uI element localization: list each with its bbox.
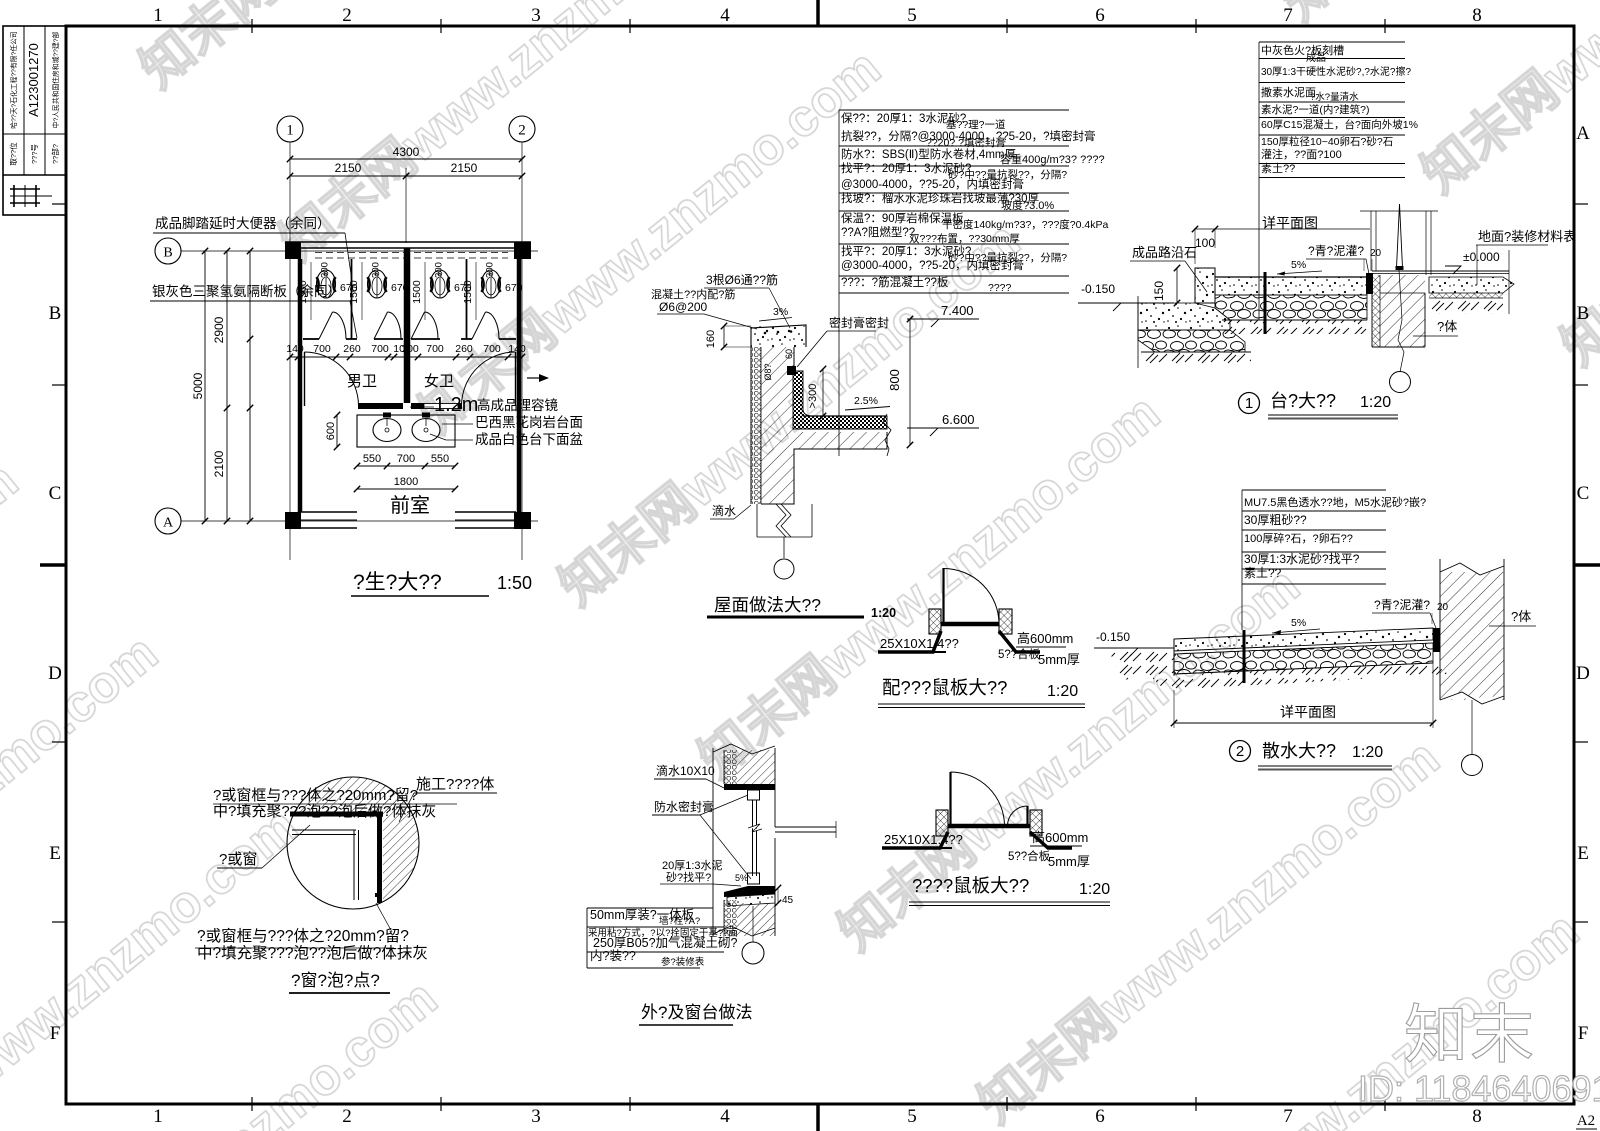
svg-text:140: 140 <box>286 343 304 355</box>
svg-text:5mm厚: 5mm厚 <box>1038 652 1080 667</box>
svg-text:银灰色三聚氢氨隔断板（余同）: 银灰色三聚氢氨隔断板（余同） <box>152 283 341 299</box>
svg-text:6.600: 6.600 <box>942 412 975 427</box>
svg-text:??A?阻燃型??: ??A?阻燃型?? <box>841 225 915 239</box>
svg-text:5??合板: 5??合板 <box>998 647 1041 661</box>
svg-text:-0.150: -0.150 <box>1096 630 1130 644</box>
svg-text:1500: 1500 <box>348 280 360 304</box>
svg-text:取??位: 取??位 <box>8 142 18 166</box>
svg-text:ID: 1184640691: ID: 1184640691 <box>1358 1068 1600 1109</box>
svg-text:2: 2 <box>1236 743 1244 760</box>
svg-text:30厚1:3水泥砂?找平?: 30厚1:3水泥砂?找平? <box>1244 552 1360 566</box>
svg-text:?或窗框与???体之?20mm?留?: ?或窗框与???体之?20mm?留? <box>213 786 418 804</box>
svg-text:1: 1 <box>153 5 163 26</box>
svg-text:300: 300 <box>485 262 496 278</box>
svg-text:墙?栓?A?: 墙?栓?A? <box>659 915 700 927</box>
svg-text:混凝土??内配?筋: 混凝土??内配?筋 <box>651 287 735 301</box>
svg-text:550: 550 <box>431 453 449 465</box>
svg-text:散水大??: 散水大?? <box>1262 741 1336 761</box>
svg-text:4: 4 <box>720 5 730 26</box>
svg-text:??20? ?填密封膏: ??20? ?填密封膏 <box>926 136 1006 149</box>
svg-text:基??理?一道: 基??理?一道 <box>946 118 1006 131</box>
svg-text:?体: ?体 <box>1511 609 1531 624</box>
svg-text:防水?：SBS(Ⅱ)型防水卷材,4mm厚: 防水?：SBS(Ⅱ)型防水卷材,4mm厚 <box>841 147 1016 161</box>
svg-text:???：?筋混凝土??板: ???：?筋混凝土??板 <box>841 275 949 289</box>
svg-text:2150: 2150 <box>451 161 478 175</box>
svg-text:中?填充聚???泡??泡后做?体抹灰: 中?填充聚???泡??泡后做?体抹灰 <box>197 944 428 962</box>
svg-text:20厚1:3水泥: 20厚1:3水泥 <box>662 859 723 872</box>
svg-text:女卫: 女卫 <box>424 372 454 390</box>
svg-text:±0.000: ±0.000 <box>1463 250 1500 264</box>
svg-text:1800: 1800 <box>394 476 418 488</box>
svg-text:?水?量清水: ?水?量清水 <box>1310 91 1359 103</box>
svg-text:5%: 5% <box>1291 617 1306 629</box>
svg-text:150: 150 <box>1152 281 1166 301</box>
svg-text:?青?泥灌?: ?青?泥灌? <box>1374 598 1430 612</box>
svg-text:砂?找平?: 砂?找平? <box>666 870 711 884</box>
svg-text:700: 700 <box>397 453 415 465</box>
svg-text:3: 3 <box>531 5 541 26</box>
svg-text:670: 670 <box>391 282 409 294</box>
svg-text:?生?大??: ?生?大?? <box>353 571 442 594</box>
svg-text:1: 1 <box>1245 395 1253 412</box>
svg-text:1.2m: 1.2m <box>434 394 478 416</box>
svg-text:5%: 5% <box>735 873 748 883</box>
svg-text:1:20: 1:20 <box>1360 394 1391 411</box>
svg-text:?体: ?体 <box>1437 319 1457 334</box>
svg-text:D: D <box>48 663 62 684</box>
svg-text:45: 45 <box>782 895 794 906</box>
svg-text:5mm厚: 5mm厚 <box>1048 854 1090 869</box>
svg-text:4: 4 <box>720 1106 730 1127</box>
svg-text:700: 700 <box>483 343 501 355</box>
svg-text:2100: 2100 <box>212 450 226 477</box>
svg-text:A: A <box>163 516 174 531</box>
svg-text:-0.150: -0.150 <box>1081 282 1115 296</box>
svg-text:2.5%: 2.5% <box>854 395 878 407</box>
svg-text:配???鼠板大??: 配???鼠板大?? <box>882 677 1007 698</box>
svg-text:>300: >300 <box>807 384 819 409</box>
svg-text:撒素水泥面: 撒素水泥面 <box>1261 85 1316 99</box>
svg-text:1: 1 <box>153 1106 163 1127</box>
svg-text:700: 700 <box>426 343 444 355</box>
svg-text:1: 1 <box>286 123 294 139</box>
svg-text:2: 2 <box>518 123 526 139</box>
svg-text:A123001270: A123001270 <box>26 43 41 117</box>
svg-text:素水泥?一道(内?建筑?): 素水泥?一道(内?建筑?) <box>1261 103 1370 116</box>
svg-text:滴水: 滴水 <box>712 503 736 518</box>
svg-text:?或窗: ?或窗 <box>219 850 257 868</box>
svg-text:800: 800 <box>887 369 902 391</box>
svg-text:140: 140 <box>508 343 526 355</box>
svg-text:参?装修表: 参?装修表 <box>661 956 705 968</box>
svg-text:施工????体: 施工????体 <box>416 776 494 793</box>
svg-text:外?及窗台做法: 外?及窗台做法 <box>641 1003 752 1022</box>
svg-text:坡度?3.0%: 坡度?3.0% <box>1001 198 1054 212</box>
svg-text:300: 300 <box>434 262 445 278</box>
svg-text:内?装??: 内?装?? <box>590 949 636 963</box>
svg-text:2150: 2150 <box>335 161 362 175</box>
svg-text:100: 100 <box>1195 236 1215 250</box>
svg-text:2: 2 <box>342 1106 352 1127</box>
svg-text:知末: 知末 <box>1404 999 1536 1071</box>
svg-text:3根Ø6通??筋: 3根Ø6通??筋 <box>706 272 778 287</box>
svg-text:4300: 4300 <box>393 145 420 159</box>
svg-text:????: ???? <box>988 282 1012 294</box>
svg-text:滴水10X10: 滴水10X10 <box>656 763 715 778</box>
svg-text:3%: 3% <box>773 306 788 318</box>
svg-text:砂?中??量抗裂??，分隔?: 砂?中??量抗裂??，分隔? <box>948 251 1067 264</box>
svg-text:中?填充聚???泡??泡后做?体抹灰: 中?填充聚???泡??泡后做?体抹灰 <box>213 803 436 820</box>
svg-text:C: C <box>1577 483 1590 504</box>
svg-text:防水密封膏: 防水密封膏 <box>654 799 714 814</box>
svg-text:A2: A2 <box>1577 1113 1595 1129</box>
svg-text:地面?装修材料表: 地面?装修材料表 <box>1478 229 1576 244</box>
svg-text:1:20: 1:20 <box>1047 683 1078 700</box>
svg-text:Ø8?: Ø8? <box>763 363 773 380</box>
svg-text:中?人民共和国住房和城??建?部: 中?人民共和国住房和城??建?部 <box>51 31 60 128</box>
svg-text:成品白色台下面盆: 成品白色台下面盆 <box>475 431 583 447</box>
svg-text:成品路沿石: 成品路沿石 <box>1132 245 1197 260</box>
svg-text:25X10X1.4??: 25X10X1.4?? <box>880 636 959 651</box>
svg-text:巴西黑花岗岩台面: 巴西黑花岗岩台面 <box>475 415 583 430</box>
svg-text:B: B <box>163 246 172 261</box>
svg-text:素土??: 素土?? <box>1244 566 1282 580</box>
svg-text:前室: 前室 <box>390 494 430 517</box>
svg-text:成品: 成品 <box>1306 52 1326 64</box>
svg-text:550: 550 <box>363 453 381 465</box>
svg-text:1:20: 1:20 <box>1079 881 1110 898</box>
svg-text:300: 300 <box>320 262 331 278</box>
svg-text:干密度140kg/m?3?，???度?0.4kPa: 干密度140kg/m?3?，???度?0.4kPa <box>942 218 1108 231</box>
svg-text:容重400g/m?3? ????: 容重400g/m?3? ???? <box>1000 152 1105 166</box>
svg-text:B: B <box>49 303 62 324</box>
svg-text:600: 600 <box>325 422 337 440</box>
svg-text:F: F <box>1578 1023 1589 1044</box>
svg-text:7: 7 <box>1283 1106 1293 1127</box>
svg-text:1:50: 1:50 <box>497 573 532 593</box>
svg-text:700: 700 <box>371 343 389 355</box>
svg-text:高600mm: 高600mm <box>1017 631 1073 646</box>
svg-text:260: 260 <box>343 343 361 355</box>
svg-text:2: 2 <box>342 5 352 26</box>
svg-text:砂?中??量抗裂??，分隔?: 砂?中??量抗裂??，分隔? <box>948 168 1067 181</box>
svg-text:E: E <box>49 843 61 864</box>
svg-text:????鼠板大??: ????鼠板大?? <box>912 875 1029 896</box>
svg-text:160: 160 <box>705 330 717 348</box>
svg-text:B: B <box>1577 303 1590 324</box>
svg-text:6: 6 <box>1095 1106 1105 1127</box>
svg-text:250厚B05?加气混凝土砌?: 250厚B05?加气混凝土砌? <box>593 935 738 950</box>
svg-text:300: 300 <box>371 262 382 278</box>
svg-text:??部?: ??部? <box>50 144 60 164</box>
svg-text:25X10X1.4??: 25X10X1.4?? <box>884 832 963 847</box>
svg-text:6: 6 <box>1095 5 1105 26</box>
svg-text:8: 8 <box>1472 1106 1482 1127</box>
svg-text:?或窗框与???体之?20mm?留?: ?或窗框与???体之?20mm?留? <box>197 927 409 945</box>
svg-text:中灰色火?板刻槽: 中灰色火?板刻槽 <box>1261 43 1344 57</box>
svg-text:7: 7 <box>1283 5 1293 26</box>
svg-text:3: 3 <box>531 1106 541 1127</box>
svg-text:7.400: 7.400 <box>941 303 974 318</box>
svg-text:高600mm: 高600mm <box>1032 830 1088 845</box>
svg-text:5: 5 <box>907 5 917 26</box>
svg-text:C: C <box>49 483 62 504</box>
svg-text:30厚1:3干硬性水泥砂?,?水泥?擦?: 30厚1:3干硬性水泥砂?,?水泥?擦? <box>1261 65 1411 78</box>
svg-text:5%: 5% <box>1291 259 1306 271</box>
svg-text:1:20: 1:20 <box>1352 744 1383 761</box>
svg-text:D: D <box>1576 663 1590 684</box>
svg-text:哈??天?石化工程??有限?任公司: 哈??天?石化工程??有限?任公司 <box>9 31 18 129</box>
svg-text:30厚粗砂??: 30厚粗砂?? <box>1244 513 1307 527</box>
svg-text:100: 100 <box>401 343 419 355</box>
svg-text:密封膏密封: 密封膏密封 <box>829 315 889 330</box>
svg-text:2900: 2900 <box>212 316 226 343</box>
svg-text:5: 5 <box>907 1106 917 1127</box>
svg-text:E: E <box>1577 843 1589 864</box>
svg-text:高成品理容镜: 高成品理容镜 <box>477 397 558 413</box>
svg-text:Ø6@200: Ø6@200 <box>659 300 708 314</box>
svg-text:1500: 1500 <box>462 280 474 304</box>
svg-text:灌注，??面?100: 灌注，??面?100 <box>1261 147 1342 161</box>
svg-text:双???布置，??30mm厚: 双???布置，??30mm厚 <box>909 233 1020 245</box>
svg-text:F: F <box>50 1023 61 1044</box>
svg-text:屋面做法大??: 屋面做法大?? <box>714 595 821 615</box>
svg-text:260: 260 <box>455 343 473 355</box>
svg-text:???号: ???号 <box>30 144 39 164</box>
svg-text:?青?泥灌?: ?青?泥灌? <box>1308 244 1364 258</box>
svg-text:5??合板: 5??合板 <box>1008 849 1051 863</box>
svg-text:A: A <box>1576 123 1590 144</box>
svg-text:1:20: 1:20 <box>871 606 896 620</box>
svg-text:详平面图: 详平面图 <box>1280 704 1336 720</box>
svg-text:?窗?泡?点?: ?窗?泡?点? <box>291 971 380 990</box>
svg-text:1500: 1500 <box>411 280 423 304</box>
svg-text:台?大??: 台?大?? <box>1270 391 1336 411</box>
svg-text:150厚粒径10~40卵石?砂?石: 150厚粒径10~40卵石?砂?石 <box>1261 135 1393 148</box>
svg-text:670: 670 <box>505 282 523 294</box>
svg-text:成品脚踏延时大便器（余同）: 成品脚踏延时大便器（余同） <box>155 215 331 231</box>
svg-text:60厚C15混凝土，台?面向外坡1%: 60厚C15混凝土，台?面向外坡1% <box>1261 118 1418 131</box>
svg-text:5000: 5000 <box>191 372 205 399</box>
svg-text:60: 60 <box>784 349 794 359</box>
svg-text:8: 8 <box>1472 5 1482 26</box>
svg-text:100厚碎?石，?卵石??: 100厚碎?石，?卵石?? <box>1244 531 1353 545</box>
svg-text:男卫: 男卫 <box>347 373 377 390</box>
svg-text:MU7.5黑色透水??地，M5水泥砂?嵌?: MU7.5黑色透水??地，M5水泥砂?嵌? <box>1244 495 1426 509</box>
